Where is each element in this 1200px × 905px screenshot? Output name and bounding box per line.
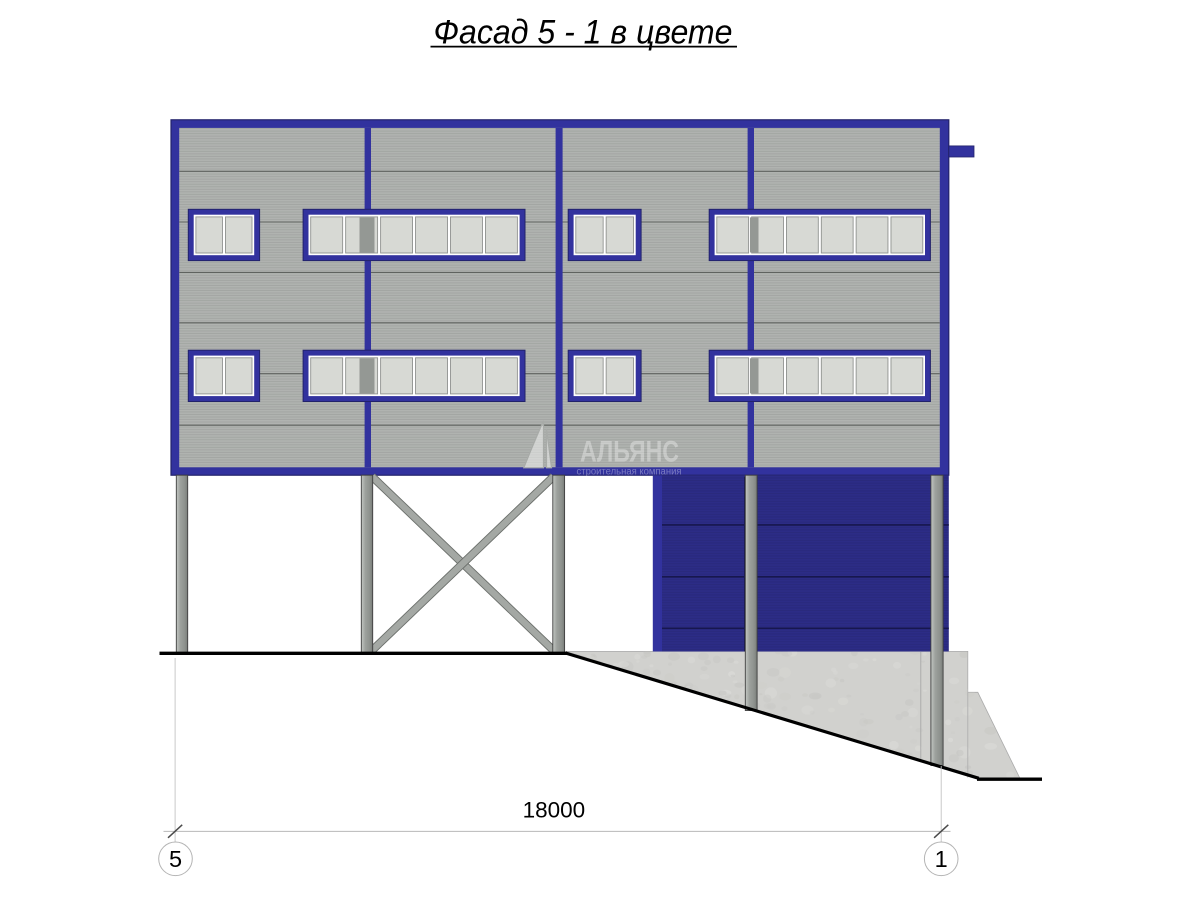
svg-text:1: 1 (935, 846, 948, 872)
svg-text:АЛЬЯНС: АЛЬЯНС (580, 435, 679, 468)
svg-text:18000: 18000 (523, 798, 586, 823)
svg-text:5: 5 (169, 846, 182, 872)
